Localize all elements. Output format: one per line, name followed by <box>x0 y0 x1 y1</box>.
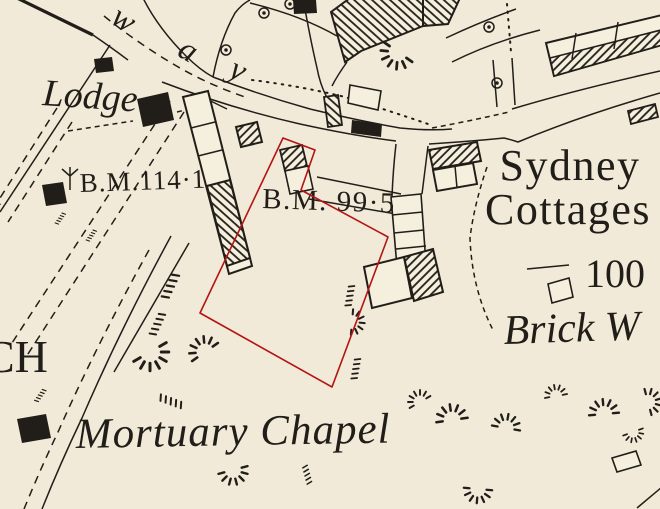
hatched-building <box>236 122 262 147</box>
label-spot-height-100: 100 <box>585 251 645 296</box>
label-mortuary-chapel: Mortuary Chapel <box>74 406 391 459</box>
label-brick-works: Brick W <box>503 303 645 354</box>
label-benchmark-114: B.M.114·1 <box>79 164 206 198</box>
benchmark-building <box>42 182 67 206</box>
label-sydney-cottages-line2: Cottages <box>485 185 651 234</box>
map-viewport[interactable]: w a y Lodge B.M.114·1 B.M. 99·5 Sydney C… <box>0 0 660 509</box>
historic-map-canvas[interactable]: w a y Lodge B.M.114·1 B.M. 99·5 Sydney C… <box>0 0 660 509</box>
label-church-fragment: CH <box>0 331 48 382</box>
label-sydney-cottages-line1: Sydney <box>500 141 641 190</box>
label-benchmark-99: B.M. 99·5 <box>262 183 397 220</box>
small-building-sw <box>17 414 51 443</box>
hatched-building <box>324 95 342 127</box>
label-lodge: Lodge <box>40 72 139 121</box>
